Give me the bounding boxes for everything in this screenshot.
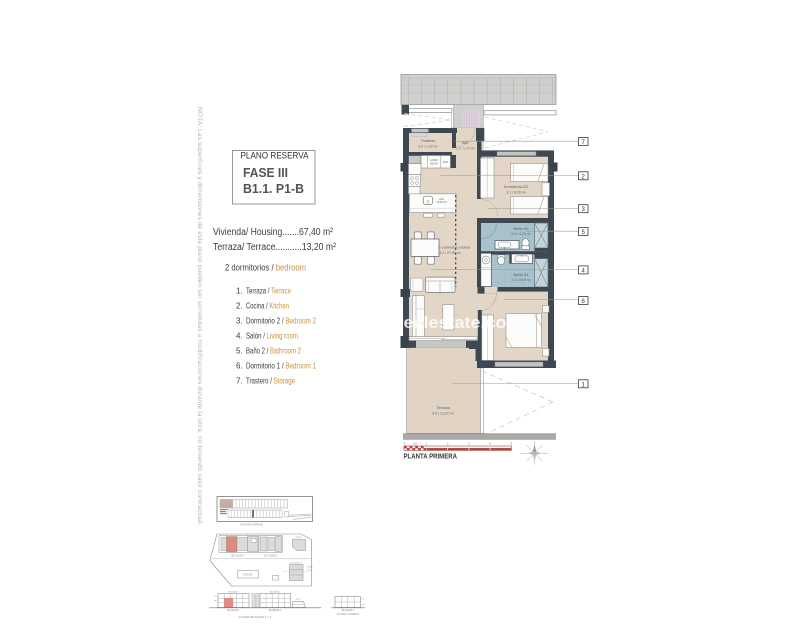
svg-text:3.: 3. <box>236 317 243 326</box>
svg-text:FASE III: FASE III <box>243 165 288 180</box>
svg-text:FRIG: FRIG <box>443 162 449 164</box>
svg-text:BLOQUE 1: BLOQUE 1 <box>228 609 241 612</box>
svg-text:Dormitorio 1 / Bedroom 1: Dormitorio 1 / Bedroom 1 <box>246 362 316 371</box>
svg-text:7.: 7. <box>236 377 243 386</box>
svg-text:P1: P1 <box>214 596 216 598</box>
svg-text:Terraza / Terrace: Terraza / Terrace <box>246 287 291 296</box>
svg-text:COM.: COM. <box>308 569 313 571</box>
svg-text:1.: 1. <box>236 287 243 296</box>
svg-text:LAVAD/: LAVAD/ <box>430 159 438 162</box>
svg-text:4.: 4. <box>236 332 243 341</box>
svg-text:Cocina / Kitchen: Cocina / Kitchen <box>246 302 289 311</box>
svg-text:ZONA: ZONA <box>308 566 314 569</box>
svg-text:BLOQUE 2: BLOQUE 2 <box>265 554 279 558</box>
svg-text:4.1 / 27,80 m²: 4.1 / 27,80 m² <box>439 251 461 255</box>
svg-text:P1: P1 <box>362 599 364 601</box>
svg-text:PISCINA: PISCINA <box>243 574 253 577</box>
svg-text:Dormitorio D2: Dormitorio D2 <box>504 184 529 189</box>
svg-text:3.5 / 4,20 m²: 3.5 / 4,20 m² <box>511 232 531 236</box>
svg-text:Baño 02: Baño 02 <box>514 226 530 231</box>
svg-text:Terraza/ Terrace...........13,: Terraza/ Terrace...........13,20 m² <box>213 242 337 253</box>
svg-text:3.1 / 1,70 m²: 3.1 / 1,70 m² <box>455 147 475 151</box>
svg-text:Terraza: Terraza <box>436 405 450 410</box>
svg-text:5.6 / 13,20 m²: 5.6 / 13,20 m² <box>432 412 454 416</box>
svg-text:BLOQUE 1: BLOQUE 1 <box>232 554 246 558</box>
svg-text:realestate.co: realestate.co <box>397 314 507 332</box>
svg-text:3.1 / 3,60 m²: 3.1 / 3,60 m² <box>511 278 531 282</box>
svg-text:BLOQUE 2: BLOQUE 2 <box>270 592 281 594</box>
svg-text:BLOQUE 3: BLOQUE 3 <box>291 563 303 565</box>
svg-text:ZZCC: ZZCC <box>296 599 301 601</box>
svg-text:6.: 6. <box>236 362 243 371</box>
svg-text:3.1 / 8,28 m²: 3.1 / 8,28 m² <box>506 191 526 195</box>
svg-text:VAJILLAS: VAJILLAS <box>436 201 447 204</box>
svg-text:Salón / Living room: Salón / Living room <box>246 332 298 341</box>
svg-text:BLOQUE 1: BLOQUE 1 <box>228 592 239 594</box>
svg-text:hall: hall <box>462 140 468 145</box>
svg-text:Trastero: Trastero <box>421 138 437 143</box>
svg-text:Dormitorio 2 / Bedroom 2: Dormitorio 2 / Bedroom 2 <box>246 317 316 326</box>
svg-text:5.: 5. <box>236 347 243 356</box>
svg-text:Baño 01: Baño 01 <box>514 272 530 277</box>
svg-text:Baño 2 / Bathroom 2: Baño 2 / Bathroom 2 <box>246 347 301 356</box>
svg-text:BLOQUE 1: BLOQUE 1 <box>342 609 355 612</box>
svg-text:BLOQUE 2: BLOQUE 2 <box>269 609 282 612</box>
svg-text:3.0 / 1,90 m²: 3.0 / 1,90 m² <box>418 145 438 149</box>
svg-text:SECAD: SECAD <box>430 162 438 165</box>
svg-text:Vivienda/ Housing.......67,40: Vivienda/ Housing.......67,40 m² <box>213 227 334 238</box>
svg-text:Trastero / Storage: Trastero / Storage <box>246 377 295 386</box>
svg-text:PLANTA GARAJE: PLANTA GARAJE <box>240 523 263 527</box>
svg-text:ALZADO LATERAL: ALZADO LATERAL <box>337 612 360 616</box>
svg-text:2.: 2. <box>236 302 243 311</box>
svg-text:ALZADO BLOQUES 1 Y 2: ALZADO BLOQUES 1 Y 2 <box>239 615 272 619</box>
svg-text:POOL: POOL <box>296 537 303 539</box>
svg-text:B1.1. P1-B: B1.1. P1-B <box>243 181 304 196</box>
svg-text:PLANO RESERVA: PLANO RESERVA <box>241 151 309 161</box>
svg-text:PLANTA PRIMERA: PLANTA PRIMERA <box>404 452 458 461</box>
svg-text:NOTA: Las superficies y dimens: NOTA: Las superficies y dimensiones de e… <box>196 107 203 525</box>
svg-text:0,5: 0,5 <box>413 441 417 445</box>
svg-text:2 dormitorios / bedroom: 2 dormitorios / bedroom <box>225 263 306 273</box>
svg-text:LAVA: LAVA <box>439 198 445 201</box>
